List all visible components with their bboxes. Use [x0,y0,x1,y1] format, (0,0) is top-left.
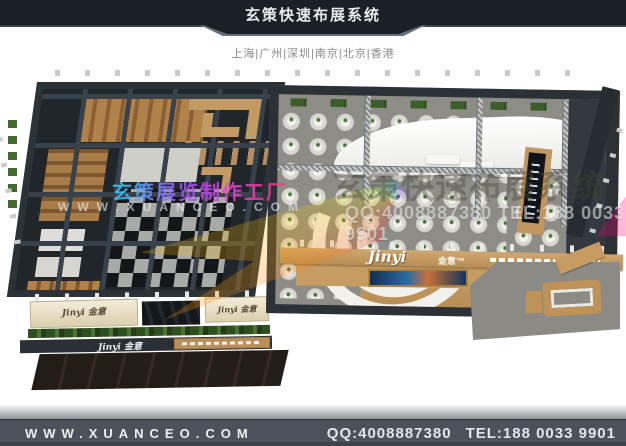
promo-page: 玄策快速布展系统 上海|广州|深圳|南京|北京|香港 Jinyi 金意 Jiny… [0,0,626,446]
contact-watermark-text: QQ:4008887380 TEL:188 0033 9901 [345,203,626,245]
system-watermark-text: 玄策快速布展系统 [333,160,605,208]
footer-website: WWW.XUANCEO.COM [25,426,254,441]
reception-u-counter [542,280,602,317]
small-text-dashes [182,341,262,345]
brand-sign-right: Jinyi 金意 [205,296,270,323]
front-panel-brown [31,350,288,390]
edge-tags-top [55,70,585,76]
wood-sign-strip [174,337,270,350]
video-screen [368,269,468,287]
counter-box [526,291,542,313]
brand-logo-script: Jinyi [368,247,406,266]
cities-line: 上海|广州|深圳|南京|北京|香港 [0,45,626,61]
meander-logo [182,99,262,155]
footer-contact: QQ:4008887380TEL:188 0033 9901 [313,425,616,442]
page-title: 玄策快速布展系统 [0,4,626,25]
footer-tel: TEL:188 0033 9901 [466,425,616,442]
brand-logo-cn: 金意™ [438,254,465,268]
footer-gradient-shadow [0,404,626,419]
footer-qq: QQ:4008887380 [327,425,452,442]
website-watermark-text: WWW.XUANCEO.COM [58,200,306,214]
header-tab [203,25,423,34]
brand-logo-script: Jinyi 金意 [98,339,142,353]
footer-bar: WWW.XUANCEO.COM QQ:4008887380TEL:188 003… [0,419,626,446]
ribbed-panel [142,300,200,325]
hedge-strip-top [281,98,607,112]
brand-sign-left: Jinyi 金意 [30,299,139,329]
